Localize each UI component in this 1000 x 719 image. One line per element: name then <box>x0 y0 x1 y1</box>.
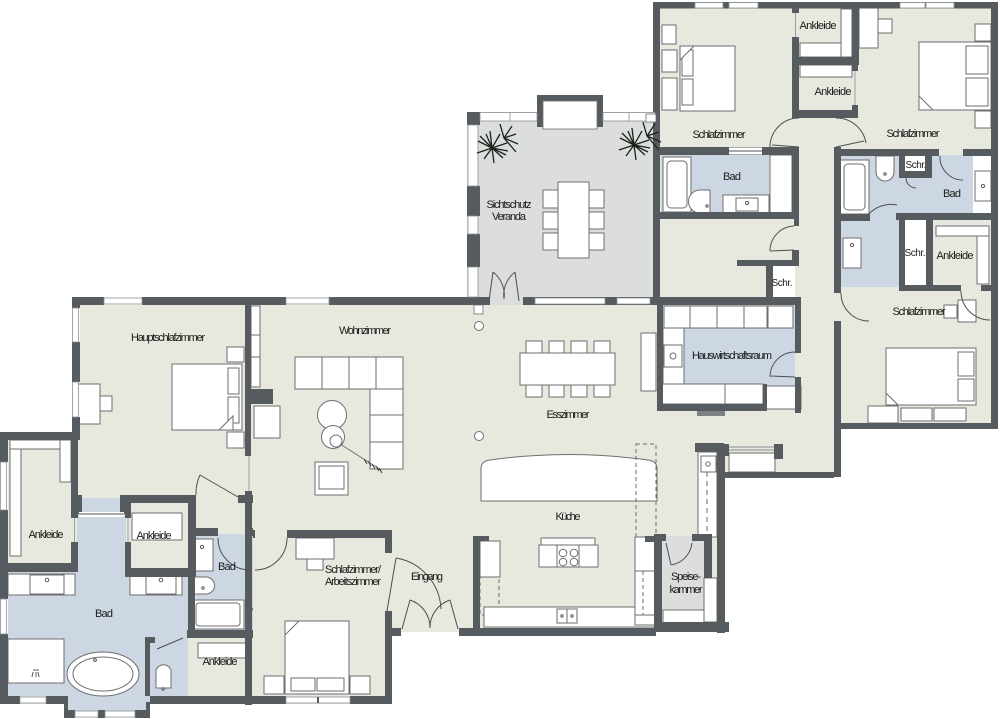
svg-text:Schlafzimmer: Schlafzimmer <box>693 129 746 141</box>
svg-text:Schr.: Schr. <box>772 278 793 289</box>
svg-text:Schlafzimmer: Schlafzimmer <box>887 128 940 140</box>
svg-text:Schlafzimmer: Schlafzimmer <box>893 306 946 318</box>
svg-text:Esszimmer: Esszimmer <box>547 409 590 421</box>
svg-text:Ankleide: Ankleide <box>815 86 852 98</box>
svg-text:Sichtschutz: Sichtschutz <box>487 199 532 211</box>
svg-text:Schr.: Schr. <box>905 248 926 259</box>
svg-text:Hauswirtschaftsraum: Hauswirtschaftsraum <box>692 350 772 362</box>
svg-text:Speise-: Speise- <box>671 571 701 583</box>
svg-text:Bad: Bad <box>95 608 113 620</box>
svg-text:Eingang: Eingang <box>411 571 443 583</box>
svg-text:Veranda: Veranda <box>492 211 527 223</box>
svg-text:Ankleide: Ankleide <box>137 530 172 542</box>
svg-text:Schr.: Schr. <box>906 160 927 171</box>
svg-text:Bad: Bad <box>723 171 741 183</box>
svg-text:Ankleide: Ankleide <box>29 529 64 541</box>
svg-text:Hauptschlafzimmer: Hauptschlafzimmer <box>131 332 205 344</box>
svg-text:Bad: Bad <box>943 188 961 200</box>
svg-text:Arbeitszimmer: Arbeitszimmer <box>325 576 381 588</box>
svg-text:Ankleide: Ankleide <box>203 656 238 668</box>
svg-text:Ankleide: Ankleide <box>937 250 974 262</box>
svg-text:Bad: Bad <box>218 561 236 573</box>
svg-text:Ankleide: Ankleide <box>800 20 837 32</box>
svg-text:Wohnzimmer: Wohnzimmer <box>339 325 391 337</box>
svg-text:Küche: Küche <box>556 511 581 523</box>
svg-text:kammer: kammer <box>670 584 703 596</box>
svg-text:Schlafzimmer/: Schlafzimmer/ <box>325 564 382 576</box>
